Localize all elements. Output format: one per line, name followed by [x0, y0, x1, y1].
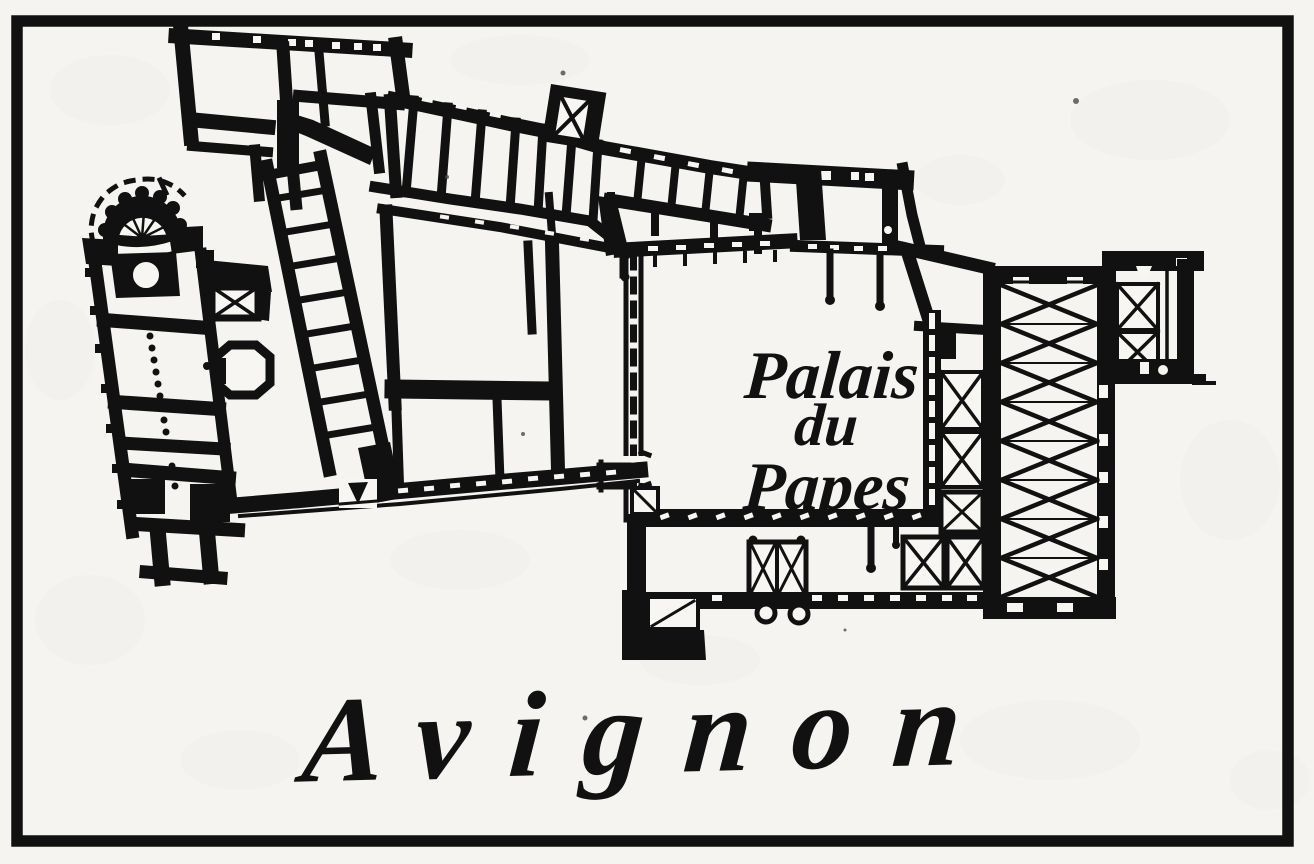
svg-text:Papes: Papes — [740, 448, 912, 524]
svg-text:Avignon: Avignon — [291, 655, 1006, 808]
